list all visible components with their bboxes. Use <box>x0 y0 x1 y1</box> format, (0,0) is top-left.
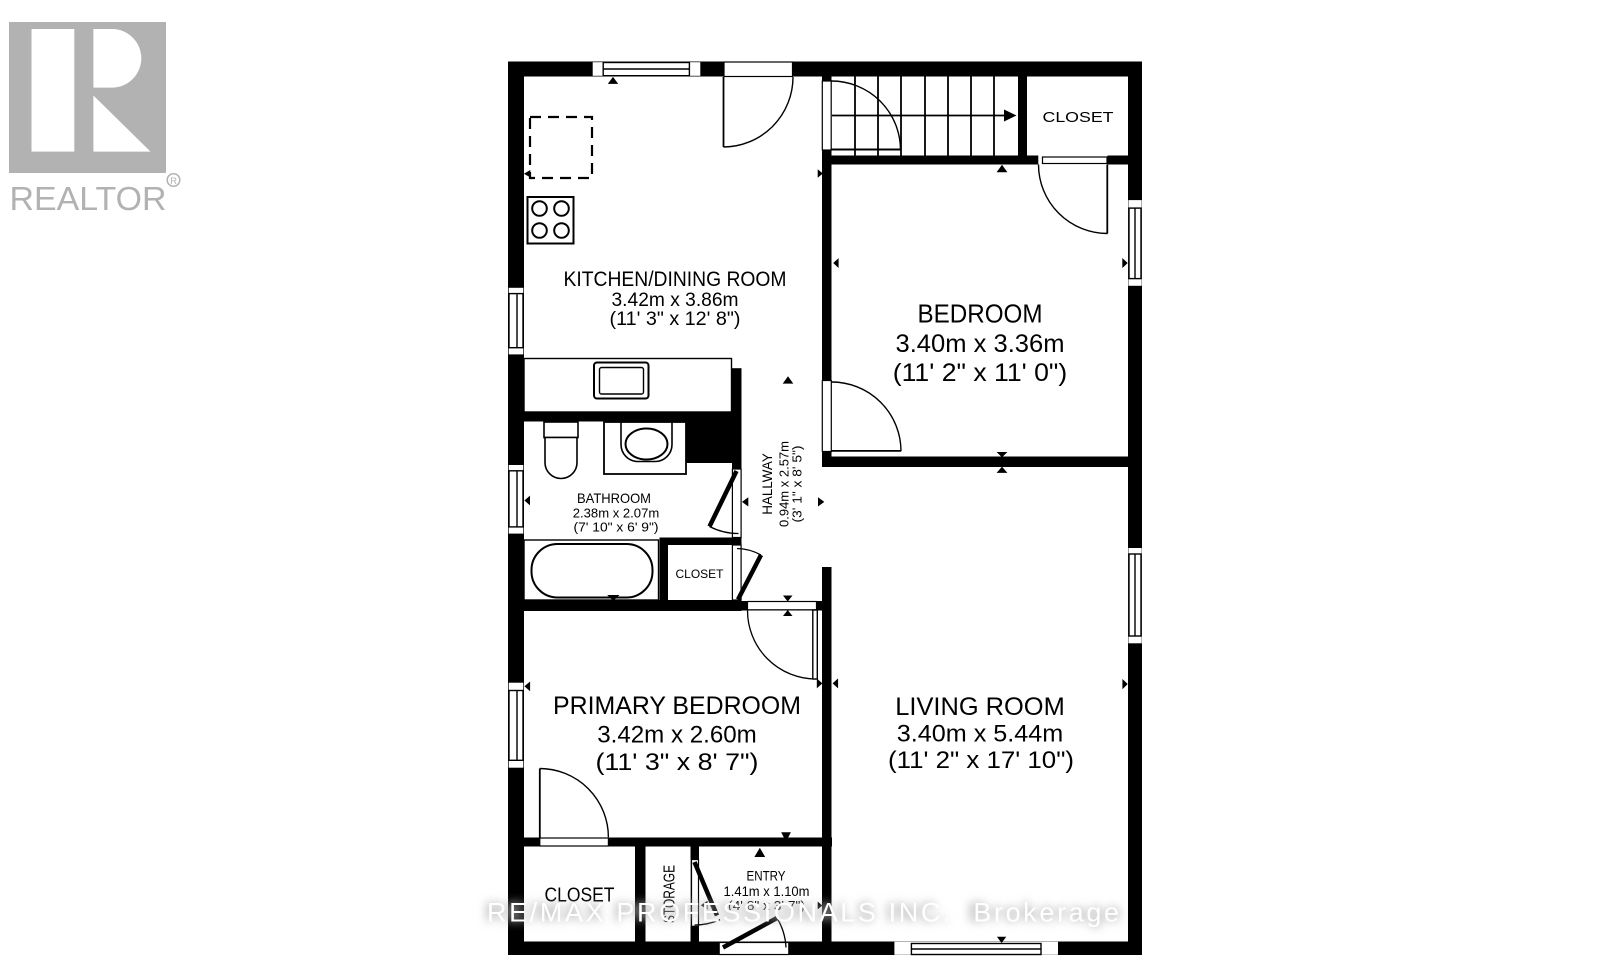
svg-text:KITCHEN/DINING ROOM: KITCHEN/DINING ROOM <box>564 268 787 291</box>
svg-text:3.40m x 3.36m: 3.40m x 3.36m <box>896 330 1065 358</box>
svg-text:R: R <box>170 176 177 187</box>
svg-text:(11' 3" x 12' 8"): (11' 3" x 12' 8") <box>610 309 741 330</box>
svg-text:BEDROOM: BEDROOM <box>918 299 1043 329</box>
svg-text:CLOSET: CLOSET <box>1043 110 1114 126</box>
svg-text:2.38m x 2.07m: 2.38m x 2.07m <box>573 506 660 521</box>
svg-text:ENTRY: ENTRY <box>747 868 787 884</box>
svg-text:BATHROOM: BATHROOM <box>577 490 651 506</box>
svg-text:CLOSET: CLOSET <box>676 567 725 581</box>
svg-text:LIVING ROOM: LIVING ROOM <box>895 693 1065 721</box>
svg-text:(7' 10" x 6' 9"): (7' 10" x 6' 9") <box>574 520 659 535</box>
svg-text:REALTOR: REALTOR <box>10 181 167 218</box>
svg-text:PRIMARY BEDROOM: PRIMARY BEDROOM <box>553 692 801 720</box>
svg-text:3.40m x 5.44m: 3.40m x 5.44m <box>897 721 1064 748</box>
svg-text:3.42m x 2.60m: 3.42m x 2.60m <box>597 722 757 749</box>
svg-text:(11' 2" x 17' 10"): (11' 2" x 17' 10") <box>888 747 1074 774</box>
svg-text:(11' 2" x 11' 0"): (11' 2" x 11' 0") <box>893 359 1068 387</box>
svg-text:RE/MAX PROFESSIONALS INC. Bro: RE/MAX PROFESSIONALS INC. Brokerage <box>487 898 1119 928</box>
svg-text:3.42m x 3.86m: 3.42m x 3.86m <box>612 290 739 311</box>
svg-text:(3' 1" x 8' 5"): (3' 1" x 8' 5") <box>790 446 805 523</box>
svg-text:HALLWAY: HALLWAY <box>760 453 775 515</box>
svg-text:(11' 3" x 8' 7"): (11' 3" x 8' 7") <box>596 749 759 776</box>
